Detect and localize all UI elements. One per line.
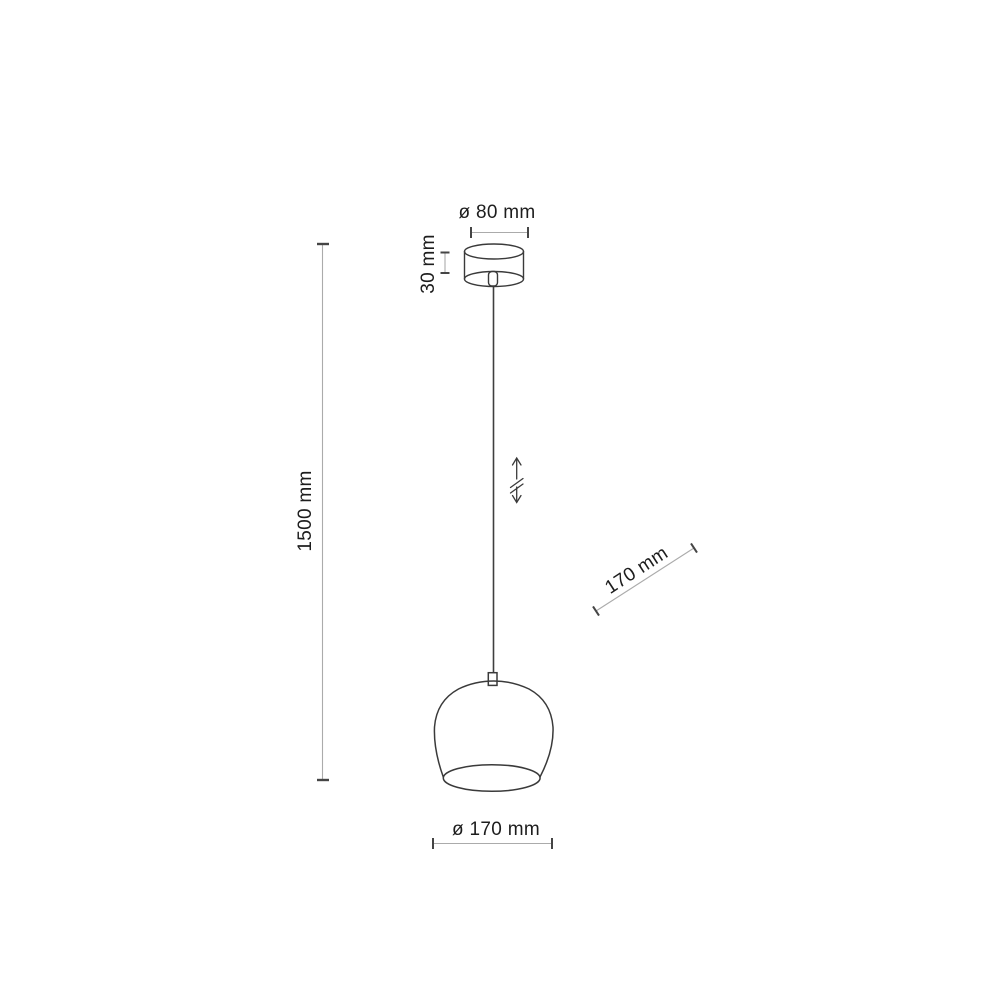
shade-diameter-label: ø 170 mm — [452, 819, 540, 841]
suspension-height-label: 1500 mm — [295, 470, 317, 551]
height-adjust-arrow-icon — [511, 458, 524, 503]
dim-canopy-height-line — [441, 253, 450, 274]
lamp-line-art — [0, 0, 1000, 1000]
shade-bottom-rim — [443, 765, 540, 792]
lamp-shade — [434, 673, 553, 792]
shade-neck — [488, 673, 497, 686]
canopy-height-label: 30 mm — [418, 234, 440, 294]
dim-total-height-line — [317, 244, 329, 780]
dim-tick — [593, 606, 599, 615]
cord-grip — [489, 272, 498, 287]
canopy-diameter-label: ø 80 mm — [458, 202, 535, 224]
dim-canopy-diameter-line — [471, 227, 528, 238]
ceiling-canopy — [465, 244, 524, 287]
canopy-top-rim — [465, 244, 524, 259]
dim-tick — [691, 543, 697, 552]
shade-ball-outline — [434, 681, 553, 777]
lamp-dimension-diagram: ø 80 mm 30 mm 1500 mm 170 mm ø 170 mm — [0, 0, 1000, 1000]
